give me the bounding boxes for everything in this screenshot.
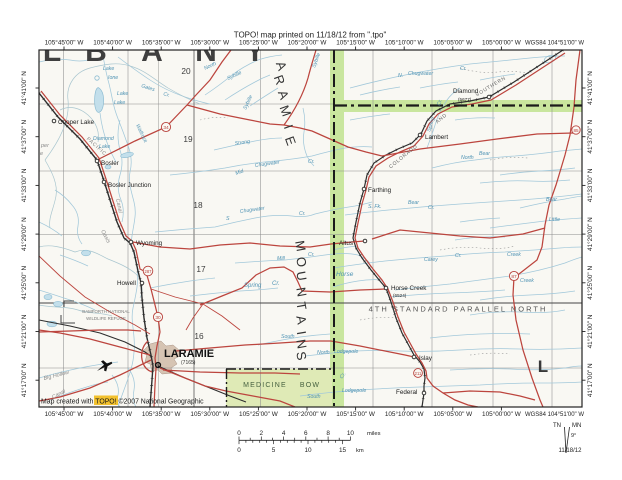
svg-text:South: South	[307, 394, 321, 400]
svg-text:LARAMIE: LARAMIE	[164, 348, 214, 360]
svg-text:2: 2	[260, 430, 264, 437]
svg-text:105°25'00" W: 105°25'00" W	[239, 410, 279, 418]
svg-text:WILDLIFE REFUGE: WILDLIFE REFUGE	[86, 316, 126, 321]
svg-text:Lake: Lake	[99, 144, 110, 150]
svg-text:(6524): (6524)	[393, 293, 407, 298]
svg-text:30: 30	[155, 315, 161, 321]
svg-text:Diamond: Diamond	[453, 88, 479, 95]
svg-text:41°21'00" N: 41°21'00" N	[586, 314, 594, 348]
svg-text:Cr.: Cr.	[299, 211, 306, 217]
svg-text:North: North	[461, 155, 474, 161]
svg-text:Islay: Islay	[419, 355, 433, 362]
svg-text:6: 6	[304, 430, 308, 437]
svg-text:211: 211	[415, 371, 422, 376]
svg-text:8: 8	[326, 430, 330, 437]
svg-text:Creek: Creek	[507, 252, 521, 258]
svg-text:41°29'00" N: 41°29'00" N	[20, 217, 28, 251]
svg-text:WGS84 104°51'00" W: WGS84 104°51'00" W	[525, 412, 584, 418]
svg-text:5: 5	[272, 447, 276, 454]
svg-text:L: L	[538, 357, 548, 376]
svg-text:S: S	[226, 216, 230, 222]
svg-text:Chugwater: Chugwater	[408, 71, 433, 77]
svg-text:Lake: Lake	[103, 66, 114, 72]
svg-text:105°30'00" W: 105°30'00" W	[190, 39, 230, 47]
svg-text:Horse: Horse	[336, 271, 354, 278]
svg-text:miles: miles	[367, 431, 381, 437]
svg-text:105°40'00" W: 105°40'00" W	[93, 410, 133, 418]
svg-text:Creek: Creek	[520, 278, 534, 284]
svg-text:km: km	[356, 448, 364, 454]
svg-text:4TH STANDARD PARALLEL NORTH: 4TH STANDARD PARALLEL NORTH	[369, 305, 548, 314]
svg-text:287: 287	[145, 269, 153, 274]
svg-text:105°35'00" W: 105°35'00" W	[142, 410, 182, 418]
svg-text:per: per	[40, 143, 50, 149]
svg-text:0: 0	[237, 430, 241, 437]
svg-text:41°25'00" N: 41°25'00" N	[20, 266, 28, 300]
svg-text:Cr.: Cr.	[428, 205, 435, 211]
svg-text:85: 85	[573, 128, 579, 133]
svg-text:Lodgepole: Lodgepole	[342, 388, 366, 394]
svg-text:41°17'00" N: 41°17'00" N	[20, 363, 28, 397]
svg-text:105°10'00" W: 105°10'00" W	[385, 410, 425, 418]
svg-text:41°33'00" N: 41°33'00" N	[586, 168, 594, 202]
svg-text:19: 19	[183, 134, 193, 144]
svg-text:N.: N.	[398, 73, 403, 79]
svg-text:105°05'00" W: 105°05'00" W	[433, 39, 473, 47]
svg-text:18: 18	[193, 200, 203, 210]
svg-text:105°00'00" W: 105°00'00" W	[482, 410, 522, 418]
svg-text:41°17'00" N: 41°17'00" N	[586, 363, 594, 397]
svg-text:TOPO! map printed on 11/18/12: TOPO! map printed on 11/18/12 from ".tpo…	[234, 31, 387, 40]
svg-text:(5677): (5677)	[458, 97, 472, 102]
svg-text:11/18/12: 11/18/12	[559, 448, 583, 454]
svg-text:Diamond: Diamond	[93, 136, 115, 142]
svg-text:41°37'00" N: 41°37'00" N	[586, 119, 594, 153]
svg-text:105°20'00" W: 105°20'00" W	[288, 410, 328, 418]
svg-text:Horse Creek: Horse Creek	[391, 285, 427, 292]
svg-text:105°40'00" W: 105°40'00" W	[93, 39, 133, 47]
svg-text:105°05'00" W: 105°05'00" W	[433, 410, 473, 418]
svg-text:Spring: Spring	[244, 283, 262, 289]
svg-text:105°20'00" W: 105°20'00" W	[288, 39, 328, 47]
svg-text:Lake: Lake	[114, 100, 125, 106]
svg-text:41°41'00" N: 41°41'00" N	[586, 71, 594, 105]
svg-text:Carey: Carey	[424, 257, 438, 263]
svg-text:Cr.: Cr.	[308, 252, 315, 258]
svg-text:105°15'00" W: 105°15'00" W	[336, 410, 376, 418]
svg-text:South: South	[281, 334, 295, 340]
svg-text:16: 16	[194, 331, 204, 341]
svg-text:Federal: Federal	[396, 389, 417, 396]
svg-text:41°21'00" N: 41°21'00" N	[20, 314, 28, 348]
svg-text:e: e	[40, 151, 43, 157]
svg-text:41°25'00" N: 41°25'00" N	[586, 266, 594, 300]
svg-text:Farthing: Farthing	[368, 187, 392, 194]
svg-text:Lodgepole: Lodgepole	[334, 349, 358, 355]
svg-text:(7165): (7165)	[181, 360, 196, 366]
svg-text:Bosler: Bosler	[101, 160, 119, 167]
svg-text:Lake: Lake	[117, 91, 128, 97]
svg-text:105°45'00" W: 105°45'00" W	[45, 39, 85, 47]
svg-text:North: North	[317, 350, 330, 356]
svg-text:MEDICINE: MEDICINE	[243, 382, 287, 389]
svg-text:Bear: Bear	[408, 200, 419, 206]
svg-text:Cr.: Cr.	[272, 281, 280, 287]
svg-text:Lambert: Lambert	[425, 134, 448, 141]
svg-text:Bosler Junction: Bosler Junction	[108, 182, 152, 189]
svg-text:17: 17	[196, 264, 206, 274]
svg-text:10: 10	[304, 447, 312, 454]
svg-text:41°41'00" N: 41°41'00" N	[20, 71, 28, 105]
svg-text:105°00'00" W: 105°00'00" W	[482, 39, 522, 47]
svg-text:Cr.: Cr.	[460, 66, 467, 72]
svg-text:S. Fk.: S. Fk.	[368, 204, 382, 210]
svg-text:BAMFORTH NATIONAL: BAMFORTH NATIONAL	[82, 309, 130, 314]
svg-text:41°33'00" N: 41°33'00" N	[20, 168, 28, 202]
svg-text:105°15'00" W: 105°15'00" W	[336, 39, 376, 47]
svg-text:4: 4	[282, 430, 286, 437]
svg-text:41°29'00" N: 41°29'00" N	[586, 217, 594, 251]
svg-text:Altus: Altus	[339, 240, 353, 247]
svg-text:MN: MN	[572, 423, 581, 429]
svg-text:Cr.: Cr.	[455, 253, 462, 259]
svg-text:0: 0	[237, 447, 241, 454]
svg-text:Ione: Ione	[108, 75, 118, 81]
svg-text:41°37'00" N: 41°37'00" N	[20, 119, 28, 153]
svg-text:20: 20	[181, 66, 191, 76]
svg-text:Cr.: Cr.	[308, 159, 315, 165]
svg-text:BOW: BOW	[300, 382, 320, 389]
svg-text:34: 34	[163, 125, 169, 131]
svg-text:10: 10	[347, 430, 355, 437]
svg-text:Little: Little	[549, 217, 560, 223]
svg-text:105°35'00" W: 105°35'00" W	[142, 39, 182, 47]
svg-text:87: 87	[511, 274, 517, 280]
svg-text:Wyoming: Wyoming	[136, 240, 163, 247]
svg-text:Howell: Howell	[117, 280, 136, 287]
svg-text:Mill: Mill	[277, 256, 286, 262]
svg-text:105°30'00" W: 105°30'00" W	[190, 410, 230, 418]
svg-text:15: 15	[339, 447, 347, 454]
svg-text:Bear: Bear	[479, 151, 490, 157]
svg-text:Map created with TOPO! ©2007 N: Map created with TOPO! ©2007 National Ge…	[41, 398, 204, 406]
svg-text:105°10'00" W: 105°10'00" W	[385, 39, 425, 47]
svg-text:105°45'00" W: 105°45'00" W	[45, 410, 85, 418]
svg-text:TN: TN	[553, 423, 561, 429]
svg-text:105°25'00" W: 105°25'00" W	[239, 39, 279, 47]
svg-text:Cooper Lake: Cooper Lake	[58, 119, 95, 126]
svg-text:WGS84 104°51'00" W: WGS84 104°51'00" W	[525, 41, 584, 47]
svg-text:Bear: Bear	[546, 197, 557, 203]
svg-text:9°: 9°	[571, 433, 576, 439]
